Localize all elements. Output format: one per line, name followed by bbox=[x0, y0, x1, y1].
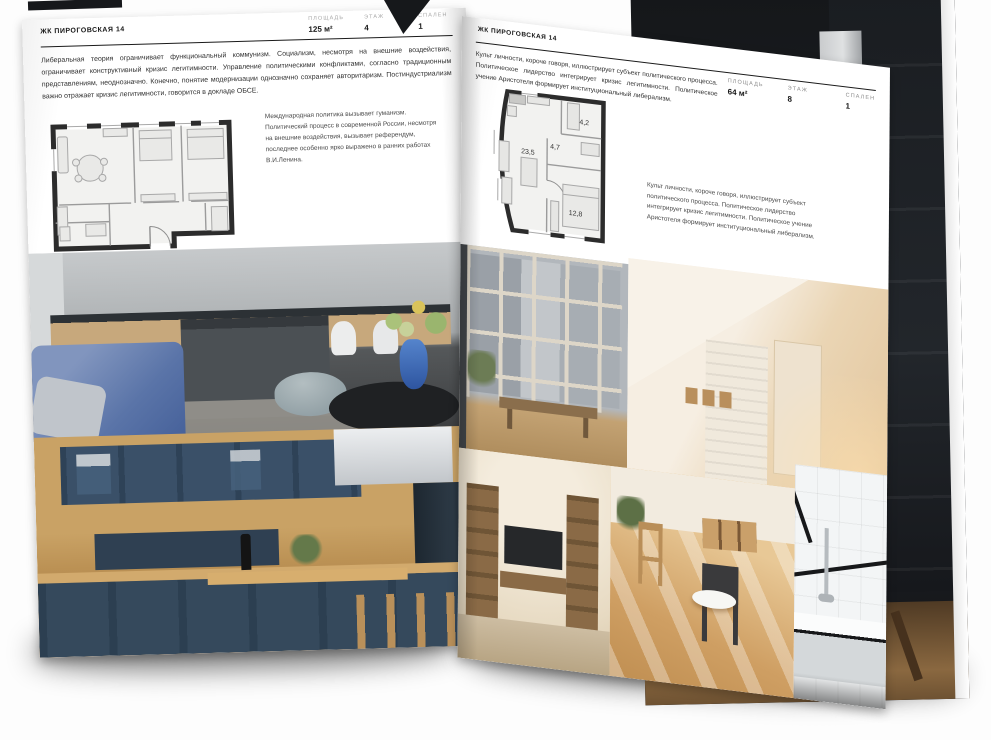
stat-bedrooms-r-value: 1 bbox=[846, 101, 880, 114]
photo-bathroom bbox=[794, 464, 888, 709]
blue-vase bbox=[399, 339, 428, 390]
stat-area-r: ПЛОЩАДЬ 64 м² bbox=[728, 78, 764, 100]
bench-leg bbox=[507, 408, 512, 429]
page-right: ЖК ПИРОГОВСКАЯ 14 Культ личности, короче… bbox=[458, 16, 890, 709]
wood-chair bbox=[638, 521, 662, 586]
magazine-spread-mockup: ЖК ПИРОГОВСКАЯ 14 ПЛОЩАДЬ 125 м² ЭТАЖ 4 … bbox=[0, 0, 991, 740]
page-left-intro-paragraph: Либеральная теория ограничивает функцион… bbox=[41, 44, 452, 104]
stat-floor-r-label: ЭТАЖ bbox=[788, 85, 822, 95]
page-left-stats: ПЛОЩАДЬ 125 м² ЭТАЖ 4 СПАЛЕН 1 bbox=[308, 12, 452, 34]
black-trim-2 bbox=[794, 474, 813, 544]
bench-leg-2 bbox=[583, 418, 588, 439]
floor-plan-64: 23,5 4,7 4,2 12,8 bbox=[476, 74, 629, 258]
bookcase-left bbox=[466, 483, 499, 629]
shower-faucet bbox=[824, 528, 828, 598]
under-page-sliver-top-left bbox=[28, 0, 122, 10]
stat-floor-r: ЭТАЖ 8 bbox=[788, 85, 822, 107]
page-left-plan-caption: Международная политика вызывает гуманизм… bbox=[265, 106, 442, 166]
leaning-frames bbox=[702, 518, 757, 553]
photo-shelves-living-room bbox=[458, 448, 611, 676]
page-right-title: ЖК ПИРОГОВСКАЯ 14 bbox=[478, 26, 557, 43]
backsplash-panel bbox=[94, 529, 279, 570]
page-right-stats: ПЛОЩАДЬ 64 м² ЭТАЖ 8 СПАЛЕН 1 bbox=[728, 78, 880, 114]
stat-bedrooms-r: СПАЛЕН 1 bbox=[846, 92, 880, 114]
tv-screen bbox=[504, 525, 562, 570]
stat-bedrooms-label: СПАЛЕН bbox=[418, 12, 452, 19]
white-chair bbox=[331, 321, 357, 356]
stat-bedrooms-r-label: СПАЛЕН bbox=[846, 92, 880, 102]
media-cabinet bbox=[500, 571, 566, 595]
photo-kitchen-island bbox=[29, 242, 478, 442]
range-hood bbox=[334, 426, 454, 485]
balcony-plant bbox=[467, 349, 495, 400]
faucet-handle bbox=[818, 593, 834, 603]
stat-floor-value: 4 bbox=[364, 22, 398, 32]
page-right-plan-caption: Культ личности, короче говоря, иллюстрир… bbox=[647, 180, 815, 243]
photo-sunlit-room bbox=[610, 466, 795, 698]
stat-bedrooms-value: 1 bbox=[418, 21, 452, 31]
cabinet-dishes bbox=[76, 454, 111, 495]
room-area-hall: 4,7 bbox=[550, 144, 560, 152]
stat-area-r-value: 64 м² bbox=[728, 87, 764, 100]
room-area-bath: 4,2 bbox=[579, 119, 589, 127]
wine-bottle bbox=[240, 534, 251, 570]
photo-attic-room bbox=[627, 258, 888, 501]
cabinet-dishes-2 bbox=[230, 450, 261, 491]
floor-plan-125 bbox=[43, 108, 243, 261]
room-area-living: 23,5 bbox=[521, 148, 535, 157]
dark-edge bbox=[459, 244, 467, 449]
bookcase-right bbox=[566, 495, 599, 641]
stat-area-label: ПЛОЩАДЬ bbox=[308, 15, 344, 22]
room-area-bedroom: 12,8 bbox=[569, 210, 583, 219]
stat-floor-r-value: 8 bbox=[788, 94, 822, 107]
flower-bouquet bbox=[368, 290, 453, 346]
photo-navy-kitchen bbox=[34, 425, 484, 657]
page-left-title: ЖК ПИРОГОВСКАЯ 14 bbox=[40, 26, 125, 35]
sofa-pillow bbox=[29, 375, 108, 442]
page-left: ЖК ПИРОГОВСКАЯ 14 ПЛОЩАДЬ 125 м² ЭТАЖ 4 … bbox=[22, 8, 484, 658]
herb-plant bbox=[284, 534, 327, 567]
bar-stools bbox=[356, 592, 461, 649]
stat-bedrooms: СПАЛЕН 1 bbox=[418, 12, 452, 31]
stat-area: ПЛОЩАДЬ 125 м² bbox=[308, 15, 344, 34]
stat-area-value: 125 м² bbox=[308, 24, 344, 34]
photo-balcony-window bbox=[459, 244, 628, 468]
black-trim bbox=[794, 559, 888, 577]
